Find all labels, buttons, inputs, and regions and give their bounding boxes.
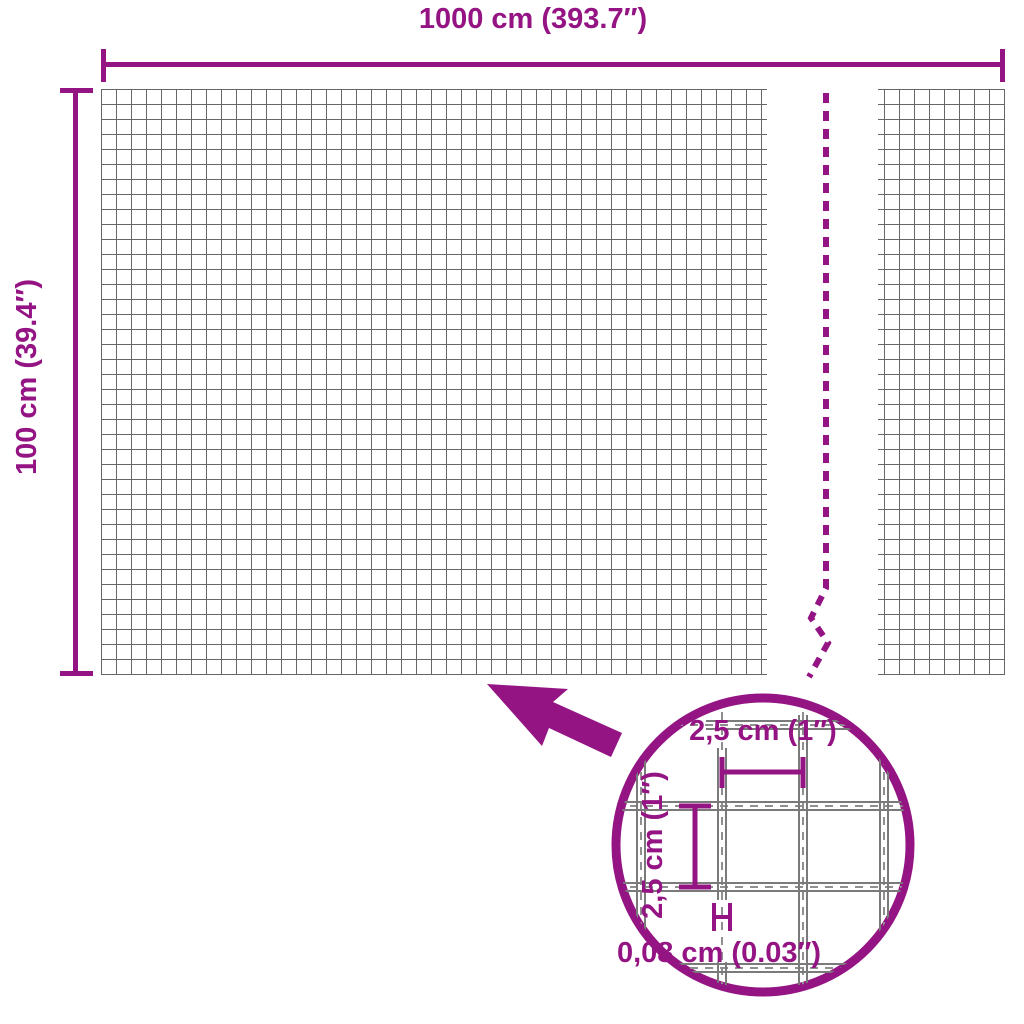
break-line (809, 93, 828, 677)
product-dimension-diagram: 1000 cm (393.7″) 100 cm (39.4″) (0, 0, 1024, 1024)
magnifier-wire-thickness-label: 0,08 cm (0.03″) (544, 934, 894, 972)
diagram-graphics (0, 0, 1024, 1024)
zoom-arrow-icon (487, 684, 622, 757)
